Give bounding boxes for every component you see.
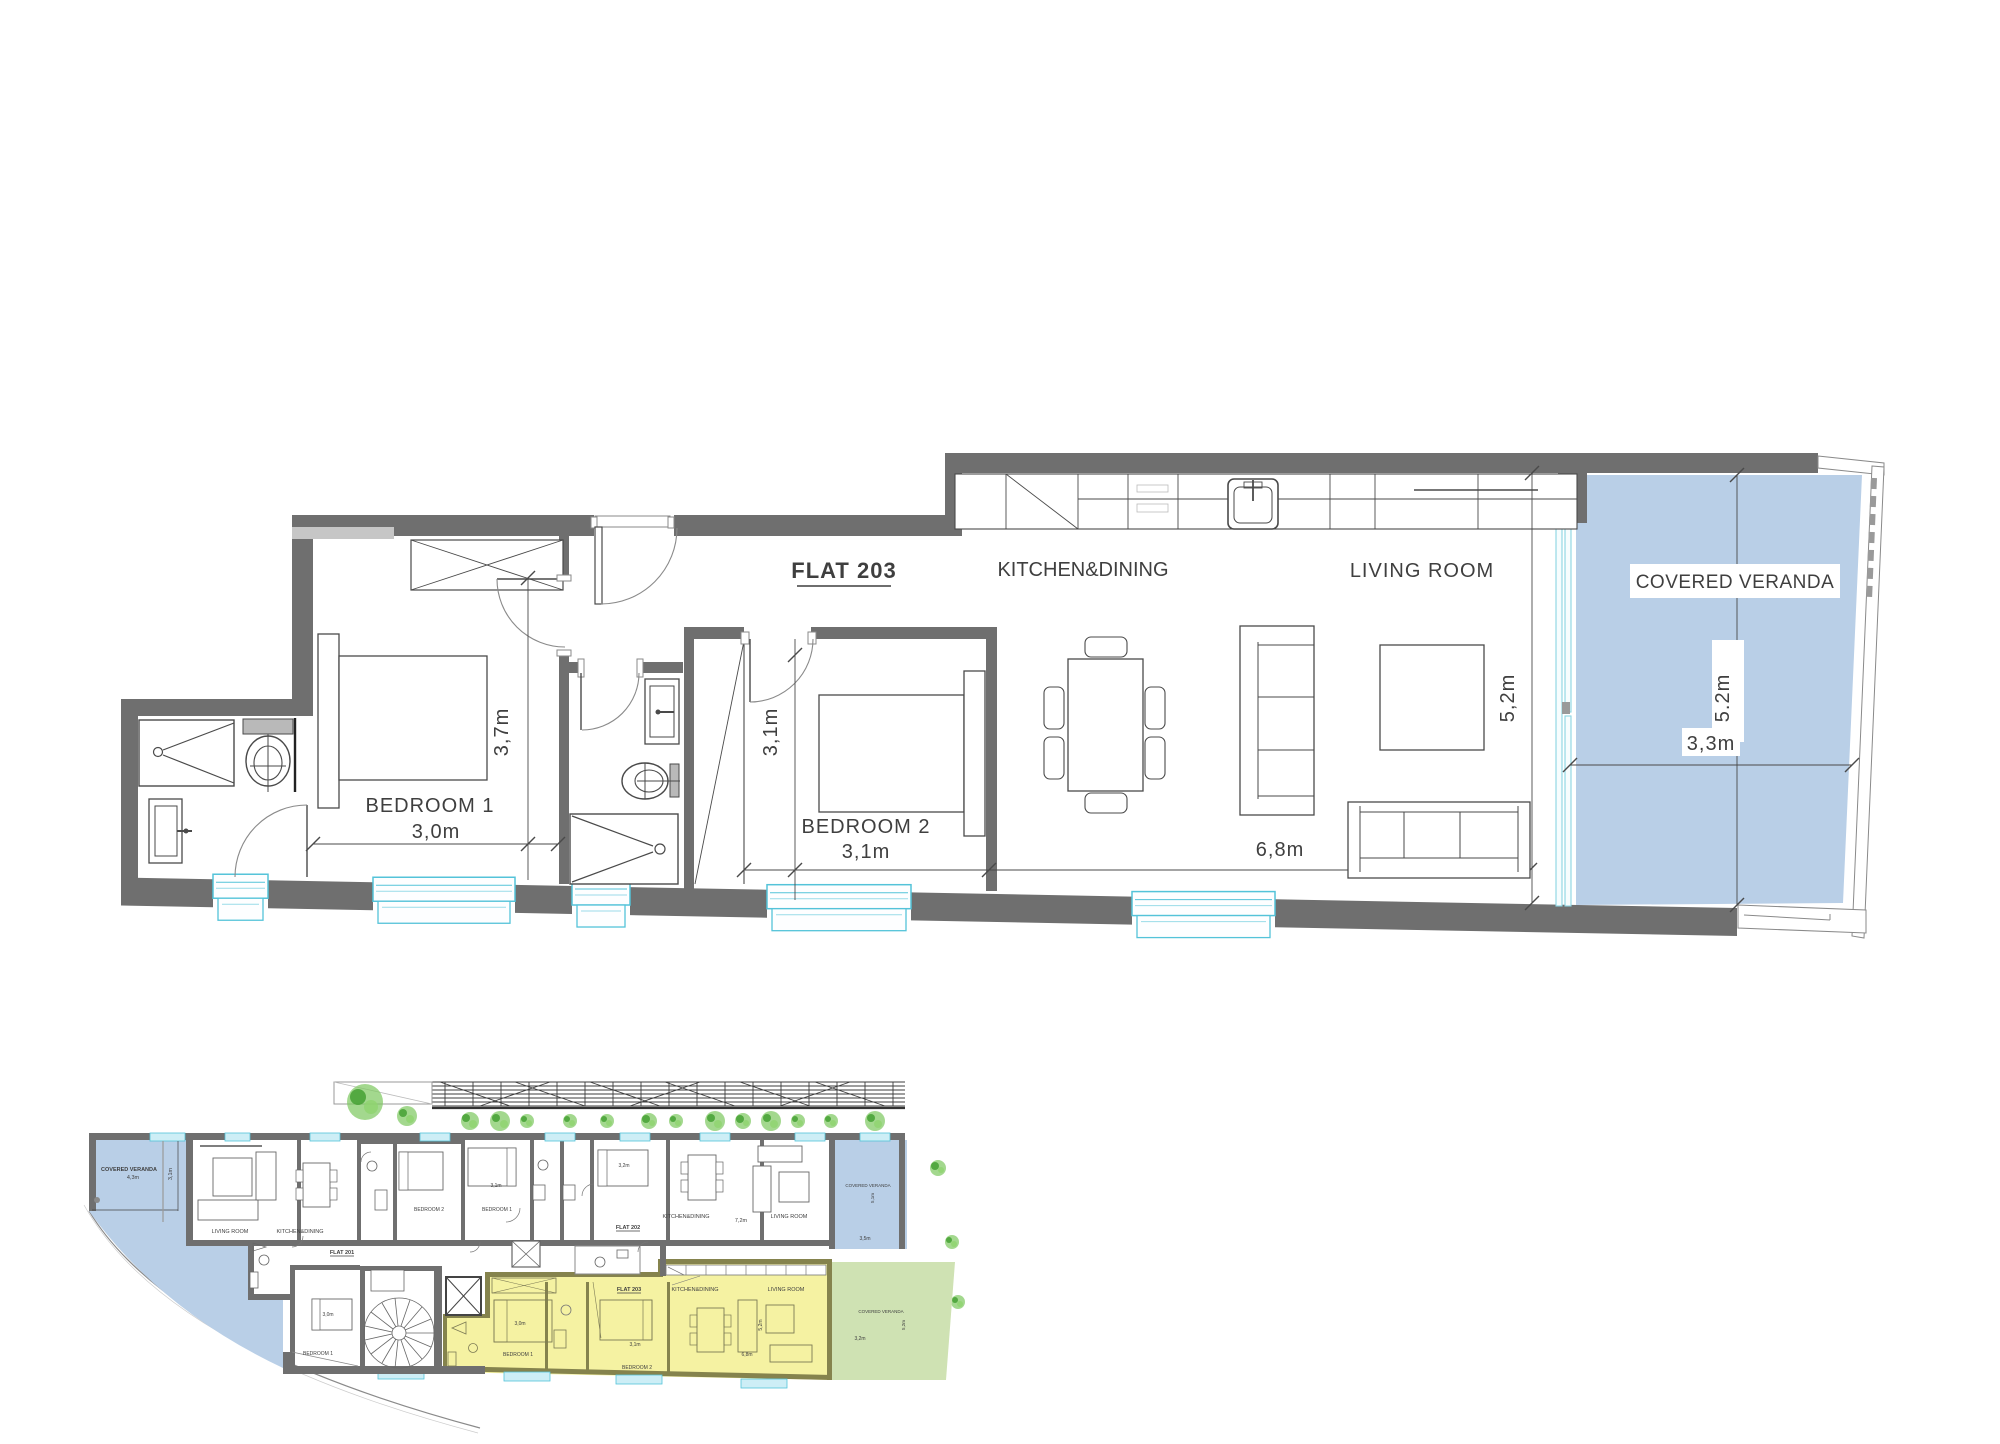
svg-text:5,1m: 5,1m — [870, 1193, 875, 1203]
svg-text:3,7m: 3,7m — [491, 708, 513, 756]
svg-text:KITCHEN&DINING: KITCHEN&DINING — [276, 1229, 323, 1235]
svg-text:BEDROOM 2: BEDROOM 2 — [622, 1365, 652, 1371]
svg-text:KITCHEN&DINING: KITCHEN&DINING — [671, 1287, 718, 1293]
svg-text:3,1m: 3,1m — [490, 1183, 501, 1189]
svg-text:FLAT 201: FLAT 201 — [330, 1250, 354, 1256]
svg-text:LIVING ROOM: LIVING ROOM — [771, 1214, 808, 1220]
svg-text:BEDROOM 2: BEDROOM 2 — [801, 816, 930, 838]
svg-text:COVERED VERANDA: COVERED VERANDA — [845, 1183, 890, 1188]
svg-text:FLAT 202: FLAT 202 — [616, 1225, 640, 1231]
svg-text:KITCHEN&DINING: KITCHEN&DINING — [997, 559, 1168, 581]
svg-text:5,2m: 5,2m — [1497, 674, 1519, 722]
svg-text:3,0m: 3,0m — [514, 1321, 525, 1327]
svg-text:LIVING ROOM: LIVING ROOM — [1350, 560, 1494, 582]
svg-text:6,8m: 6,8m — [1256, 839, 1304, 861]
svg-text:3,3m: 3,3m — [1687, 733, 1735, 755]
svg-text:3,1m: 3,1m — [760, 708, 782, 756]
svg-text:BEDROOM 1: BEDROOM 1 — [482, 1207, 512, 1213]
svg-text:4,3m: 4,3m — [127, 1175, 140, 1181]
svg-text:3,1m: 3,1m — [168, 1167, 174, 1180]
svg-text:3,1m: 3,1m — [842, 841, 890, 863]
svg-text:BEDROOM 1: BEDROOM 1 — [365, 795, 494, 817]
svg-text:7,2m: 7,2m — [735, 1218, 748, 1224]
svg-text:LIVING ROOM: LIVING ROOM — [212, 1229, 249, 1235]
svg-text:COVERED VERANDA: COVERED VERANDA — [101, 1167, 157, 1173]
svg-text:FLAT 203: FLAT 203 — [617, 1287, 641, 1293]
svg-text:3,1m: 3,1m — [629, 1342, 640, 1348]
svg-text:5,2m: 5,2m — [758, 1319, 764, 1330]
svg-text:6,8m: 6,8m — [741, 1352, 752, 1358]
svg-text:COVERED VERANDA: COVERED VERANDA — [1636, 572, 1835, 593]
svg-text:LIVING ROOM: LIVING ROOM — [768, 1287, 805, 1293]
svg-text:FLAT 203: FLAT 203 — [791, 558, 896, 583]
svg-text:KITCHEN&DINING: KITCHEN&DINING — [662, 1214, 709, 1220]
svg-text:3,2m: 3,2m — [854, 1336, 865, 1342]
svg-text:5,2m: 5,2m — [901, 1320, 906, 1330]
svg-text:3,5m: 3,5m — [859, 1236, 870, 1242]
svg-text:3,2m: 3,2m — [618, 1163, 629, 1169]
svg-text:COVERED VERANDA: COVERED VERANDA — [858, 1309, 903, 1314]
svg-text:3,0m: 3,0m — [412, 821, 460, 843]
svg-text:BEDROOM 1: BEDROOM 1 — [303, 1351, 333, 1357]
svg-text:5.2m: 5.2m — [1712, 674, 1734, 722]
svg-text:BEDROOM 2: BEDROOM 2 — [414, 1207, 444, 1213]
svg-text:BEDROOM 1: BEDROOM 1 — [503, 1352, 533, 1358]
svg-text:3,0m: 3,0m — [322, 1312, 333, 1318]
